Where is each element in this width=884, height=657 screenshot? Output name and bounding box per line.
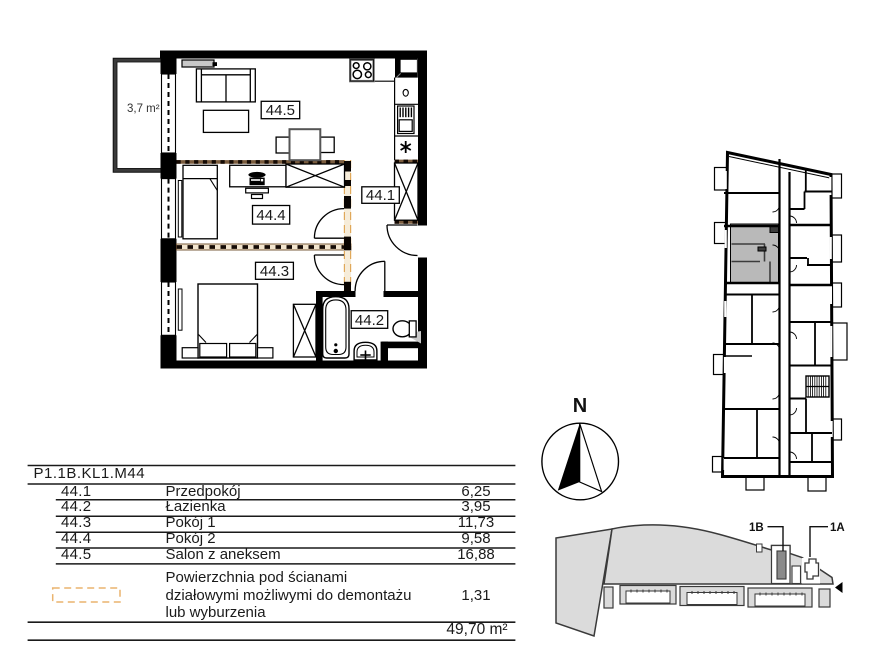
svg-text:N: N: [573, 395, 587, 417]
svg-text:44.3: 44.3: [260, 263, 289, 280]
svg-text:3,7 m²: 3,7 m²: [127, 103, 160, 115]
svg-text:1B: 1B: [749, 522, 764, 534]
svg-text:44.5: 44.5: [266, 102, 295, 119]
svg-text:1A: 1A: [830, 522, 845, 534]
svg-text:44.1: 44.1: [366, 187, 395, 204]
svg-text:44.4: 44.4: [256, 207, 285, 224]
svg-text:44.2: 44.2: [355, 312, 384, 329]
